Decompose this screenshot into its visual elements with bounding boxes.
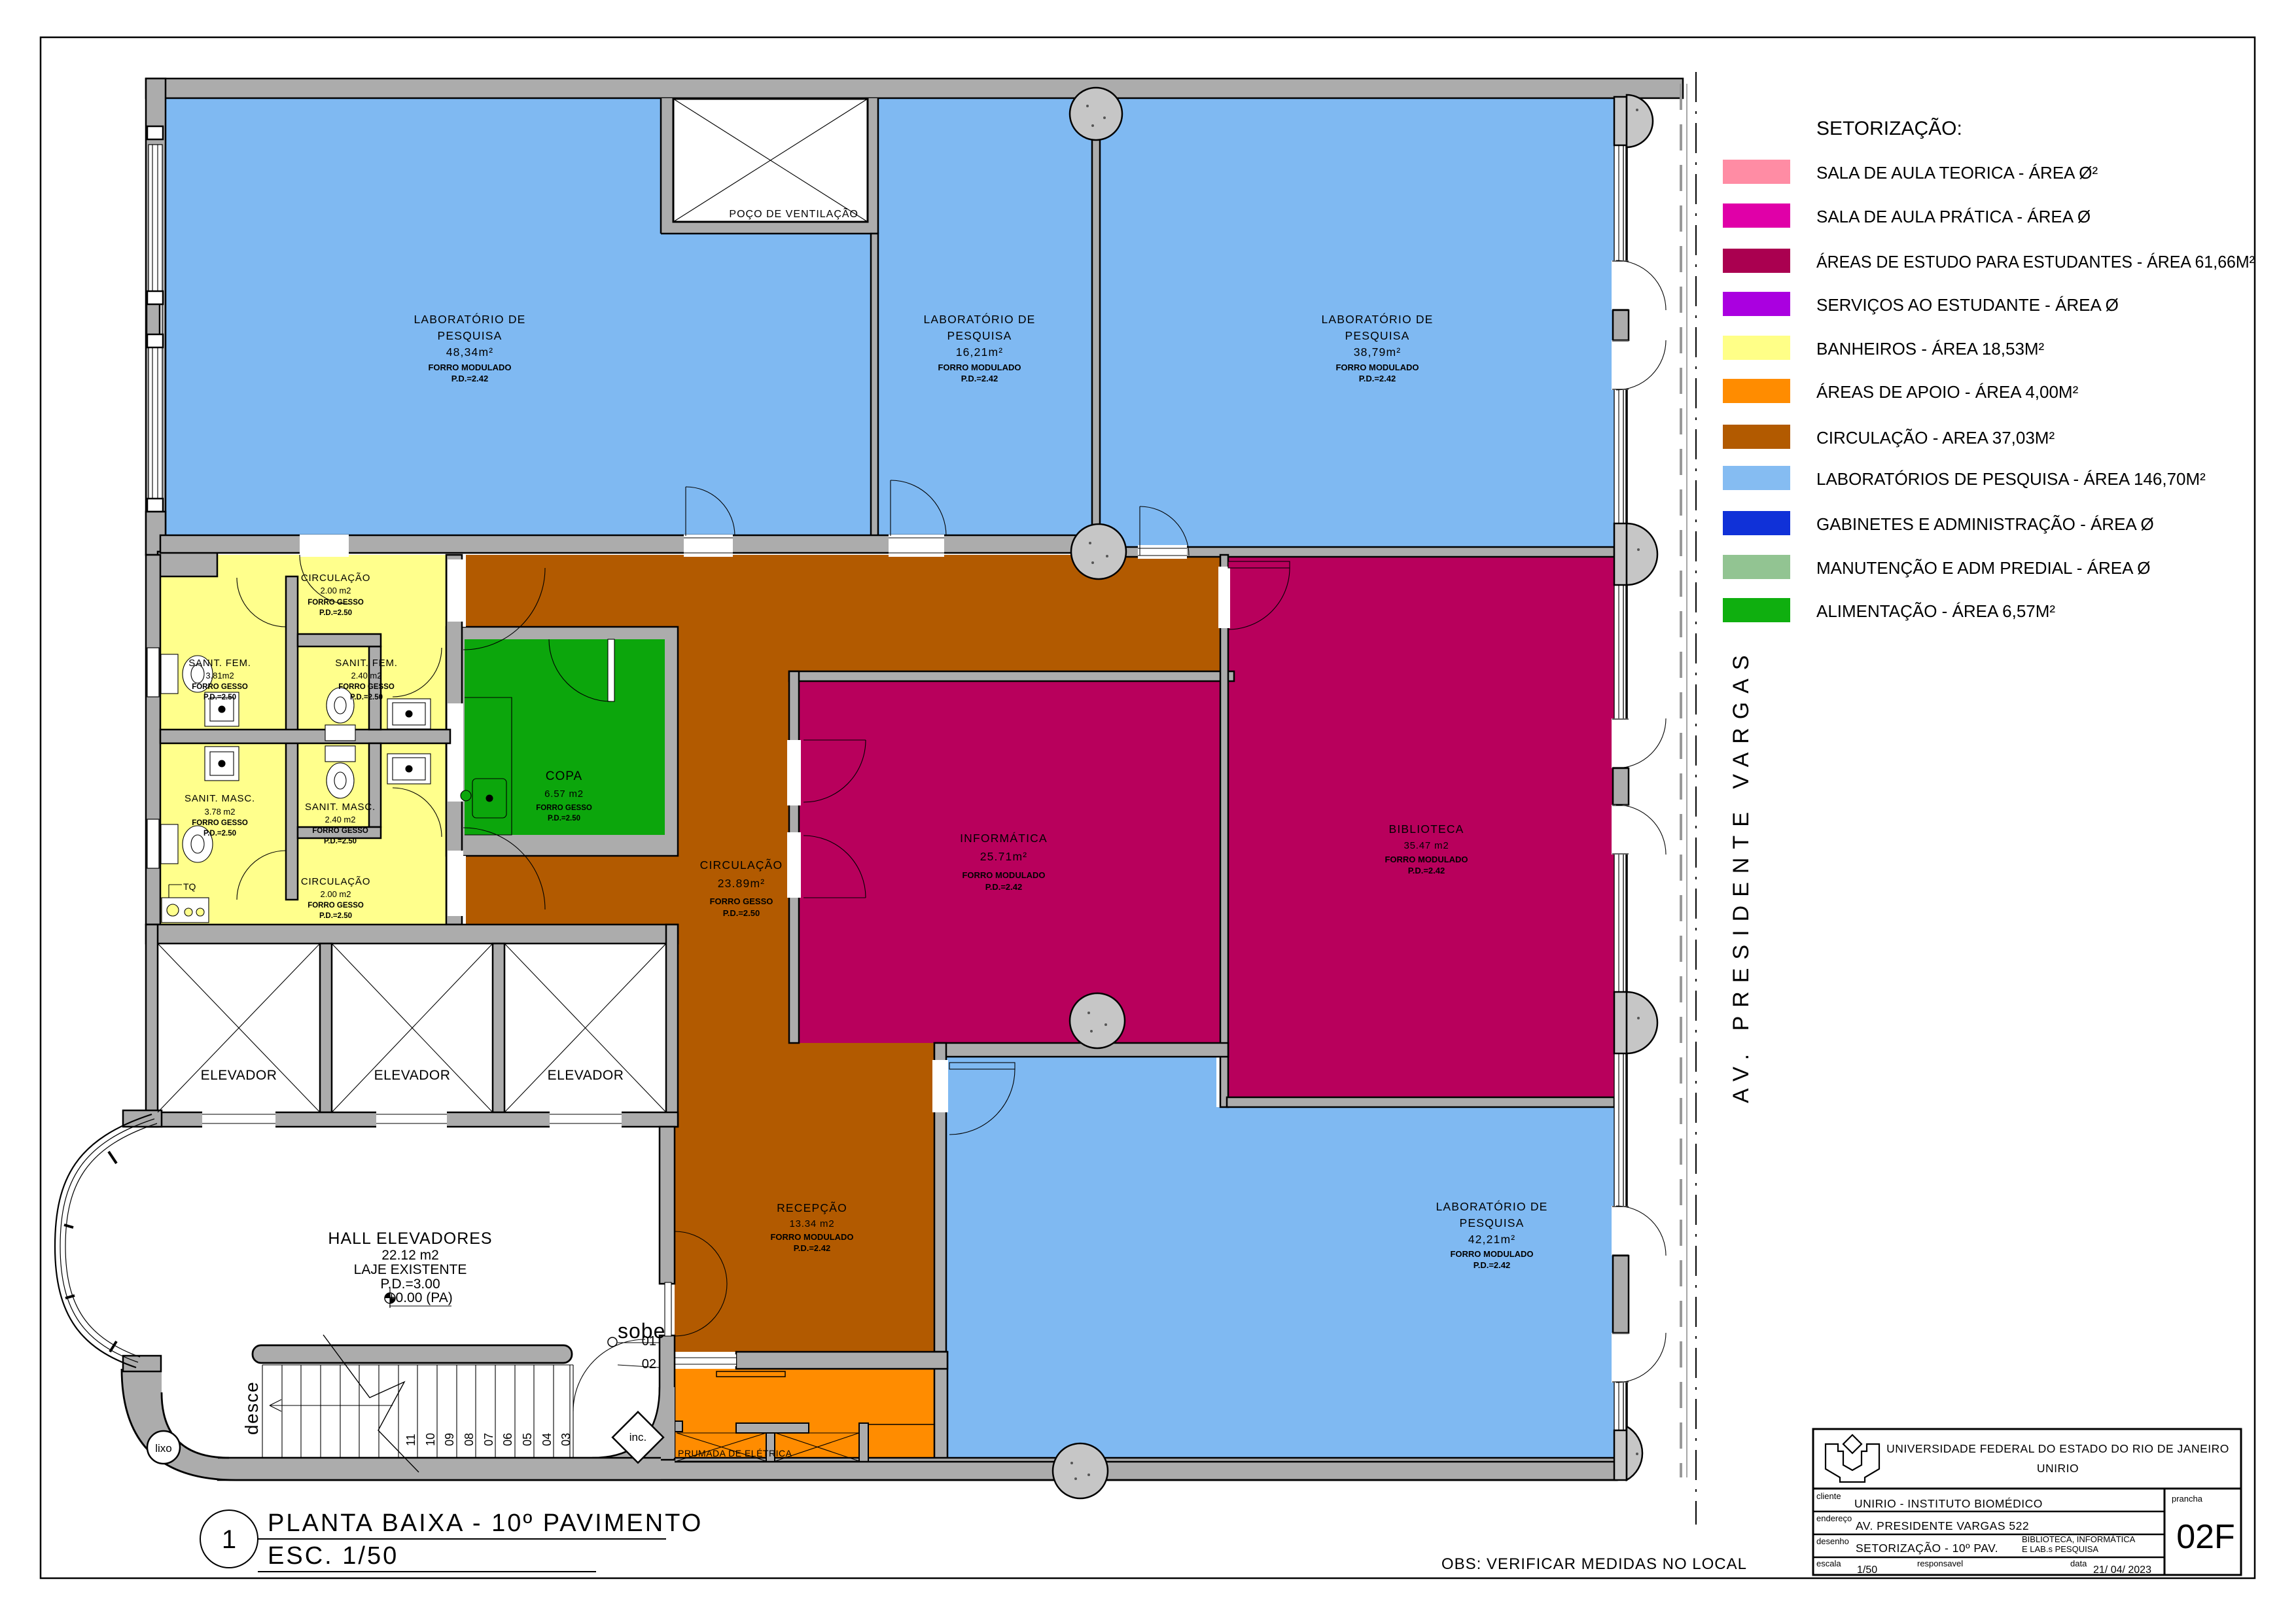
svg-text:endereço: endereço — [1816, 1513, 1852, 1523]
svg-text:PESQUISA: PESQUISA — [437, 329, 502, 342]
svg-text:SANIT. FEM.: SANIT. FEM. — [188, 658, 251, 669]
svg-text:cliente: cliente — [1816, 1491, 1841, 1501]
svg-text:ÁREAS DE APOIO - ÁREA 4,00M²: ÁREAS DE APOIO - ÁREA 4,00M² — [1816, 382, 2079, 402]
svg-text:P.D.=2.50: P.D.=2.50 — [723, 908, 760, 918]
svg-text:UNIRIO: UNIRIO — [2037, 1462, 2079, 1475]
svg-text:OBS: VERIFICAR MEDIDAS NO LOCA: OBS: VERIFICAR MEDIDAS NO LOCAL — [1441, 1555, 1747, 1573]
svg-text:LAJE EXISTENTE: LAJE EXISTENTE — [354, 1262, 467, 1277]
svg-text:COPA: COPA — [546, 769, 582, 783]
svg-text:SANIT. FEM.: SANIT. FEM. — [335, 658, 397, 669]
svg-text:16,21m²: 16,21m² — [956, 345, 1004, 359]
svg-text:LABORATÓRIO DE: LABORATÓRIO DE — [923, 312, 1035, 326]
svg-text:P.D.=2.42: P.D.=2.42 — [1474, 1260, 1511, 1270]
svg-text:FORRO GESSO: FORRO GESSO — [536, 804, 592, 812]
svg-text:SETORIZAÇÃO - 10º PAV.: SETORIZAÇÃO - 10º PAV. — [1856, 1541, 1998, 1555]
svg-text:02F: 02F — [2176, 1518, 2235, 1556]
svg-text:FORRO MODULADO: FORRO MODULADO — [428, 362, 511, 372]
svg-text:BANHEIROS - ÁREA 18,53M²: BANHEIROS - ÁREA 18,53M² — [1816, 339, 2045, 359]
svg-text:desenho: desenho — [1816, 1536, 1849, 1546]
svg-text:22.12 m2: 22.12 m2 — [381, 1248, 439, 1263]
svg-text:LABORATÓRIO DE: LABORATÓRIO DE — [1321, 312, 1433, 326]
svg-text:04: 04 — [540, 1433, 554, 1446]
svg-text:07: 07 — [482, 1433, 495, 1446]
svg-text:2.00 m2: 2.00 m2 — [321, 889, 351, 899]
svg-text:2.00 m2: 2.00 m2 — [321, 586, 351, 595]
svg-text:01: 01 — [642, 1334, 656, 1349]
svg-text:FORRO GESSO: FORRO GESSO — [338, 683, 395, 691]
svg-text:35.47 m2: 35.47 m2 — [1404, 840, 1449, 851]
svg-text:11: 11 — [404, 1434, 417, 1446]
svg-text:ELEVADOR: ELEVADOR — [374, 1068, 451, 1083]
svg-text:FORRO MODULADO: FORRO MODULADO — [1385, 855, 1468, 864]
svg-text:lixo: lixo — [155, 1442, 172, 1455]
svg-text:FORRO GESSO: FORRO GESSO — [312, 827, 368, 835]
svg-text:LABORATÓRIO DE: LABORATÓRIO DE — [414, 312, 525, 326]
svg-text:1/50: 1/50 — [1857, 1564, 1877, 1576]
svg-text:P.D.=2.50: P.D.=2.50 — [203, 830, 236, 838]
svg-text:prancha: prancha — [2172, 1494, 2203, 1504]
svg-text:GABINETES E ADMINISTRAÇÃO - ÁR: GABINETES E ADMINISTRAÇÃO - ÁREA Ø — [1816, 514, 2154, 534]
svg-text:inc.: inc. — [629, 1431, 646, 1443]
svg-text:ELEVADOR: ELEVADOR — [548, 1068, 624, 1083]
svg-text:P.D.=2.42: P.D.=2.42 — [451, 374, 489, 383]
svg-text:LABORATÓRIO DE: LABORATÓRIO DE — [1436, 1199, 1547, 1213]
svg-text:PESQUISA: PESQUISA — [1459, 1216, 1524, 1229]
svg-text:02: 02 — [642, 1357, 656, 1371]
svg-text:+0.00 (PA): +0.00 (PA) — [387, 1290, 452, 1305]
svg-text:RECEPÇÃO: RECEPÇÃO — [777, 1201, 847, 1214]
svg-text:UNIRIO - INSTITUTO BIOMÉDICO: UNIRIO - INSTITUTO BIOMÉDICO — [1854, 1497, 2043, 1510]
svg-text:P.D.=2.50: P.D.=2.50 — [548, 815, 580, 822]
svg-text:MANUTENÇÃO E ADM PREDIAL - ÁRE: MANUTENÇÃO E ADM PREDIAL - ÁREA Ø — [1816, 558, 2150, 578]
svg-text:LABORATÓRIOS DE PESQUISA - ÁRE: LABORATÓRIOS DE PESQUISA - ÁREA 146,70M² — [1816, 469, 2206, 489]
svg-text:ÁREAS DE ESTUDO PARA ESTUDANTE: ÁREAS DE ESTUDO PARA ESTUDANTES - ÁREA 6… — [1816, 252, 2255, 272]
svg-text:AV. PRESIDENTE VARGAS 522: AV. PRESIDENTE VARGAS 522 — [1856, 1519, 2029, 1532]
svg-text:AV. PRESIDENTE VARGAS: AV. PRESIDENTE VARGAS — [1729, 646, 1754, 1103]
svg-text:08: 08 — [463, 1433, 476, 1446]
svg-text:SALA DE AULA TEORICA - ÁREA Ø²: SALA DE AULA TEORICA - ÁREA Ø² — [1816, 163, 2098, 183]
svg-text:09: 09 — [443, 1433, 456, 1446]
svg-text:CIRCULAÇÃO: CIRCULAÇÃO — [301, 876, 370, 887]
svg-text:6.57 m2: 6.57 m2 — [544, 788, 584, 800]
svg-text:3.78 m2: 3.78 m2 — [205, 807, 236, 817]
svg-text:06: 06 — [501, 1433, 514, 1446]
svg-text:P.D.=2.42: P.D.=2.42 — [1408, 866, 1445, 875]
svg-text:42,21m²: 42,21m² — [1468, 1233, 1516, 1246]
svg-text:P.D.=3.00: P.D.=3.00 — [380, 1277, 440, 1292]
svg-text:POÇO DE VENTILAÇÃO: POÇO DE VENTILAÇÃO — [729, 207, 858, 220]
svg-text:FORRO GESSO: FORRO GESSO — [192, 819, 248, 827]
svg-text:38,79m²: 38,79m² — [1354, 345, 1402, 359]
svg-text:05: 05 — [521, 1433, 534, 1446]
svg-text:3.81m2: 3.81m2 — [205, 671, 234, 680]
svg-text:1: 1 — [222, 1525, 236, 1554]
svg-text:13.34 m2: 13.34 m2 — [790, 1218, 835, 1229]
svg-text:SANIT. MASC.: SANIT. MASC. — [185, 793, 255, 804]
svg-text:PLANTA BAIXA - 10º PAVIMENTO: PLANTA BAIXA - 10º PAVIMENTO — [268, 1509, 703, 1537]
svg-text:P.D.=2.50: P.D.=2.50 — [319, 609, 352, 617]
svg-text:FORRO MODULADO: FORRO MODULADO — [1335, 362, 1419, 372]
svg-text:UNIVERSIDADE FEDERAL DO ESTADO: UNIVERSIDADE FEDERAL DO ESTADO DO RIO DE… — [1886, 1442, 2229, 1455]
svg-text:SANIT. MASC.: SANIT. MASC. — [305, 802, 376, 813]
svg-text:2.40 m2: 2.40 m2 — [351, 671, 382, 680]
svg-text:FORRO MODULADO: FORRO MODULADO — [962, 870, 1045, 880]
svg-text:ESC. 1/50: ESC. 1/50 — [268, 1542, 398, 1570]
svg-text:BIBLIOTECA: BIBLIOTECA — [1388, 822, 1464, 836]
svg-text:CIRCULAÇÃO: CIRCULAÇÃO — [301, 573, 370, 584]
svg-text:FORRO GESSO: FORRO GESSO — [710, 896, 773, 906]
svg-text:FORRO GESSO: FORRO GESSO — [308, 902, 364, 909]
svg-text:21/ 04/ 2023: 21/ 04/ 2023 — [2093, 1564, 2151, 1576]
svg-text:CIRCULAÇÃO - AREA 37,03M²: CIRCULAÇÃO - AREA 37,03M² — [1816, 428, 2055, 448]
svg-text:BIBLIOTECA, INFORMÁTICA: BIBLIOTECA, INFORMÁTICA — [2022, 1534, 2136, 1544]
svg-text:P.D.=2.50: P.D.=2.50 — [350, 694, 383, 701]
svg-text:FORRO MODULADO: FORRO MODULADO — [938, 362, 1021, 372]
svg-text:FORRO GESSO: FORRO GESSO — [192, 683, 248, 691]
svg-text:P.D.=2.50: P.D.=2.50 — [324, 838, 357, 845]
svg-text:P.D.=2.42: P.D.=2.42 — [1359, 374, 1396, 383]
svg-text:10: 10 — [424, 1433, 437, 1446]
svg-text:25.71m²: 25.71m² — [980, 850, 1028, 863]
svg-text:FORRO GESSO: FORRO GESSO — [308, 599, 364, 607]
svg-text:E LAB.s PESQUISA: E LAB.s PESQUISA — [2022, 1544, 2098, 1554]
svg-text:48,34m²: 48,34m² — [446, 345, 494, 359]
svg-text:desce: desce — [241, 1381, 262, 1435]
svg-text:PRUMADA DE ELÉTRICA: PRUMADA DE ELÉTRICA — [678, 1448, 792, 1458]
svg-text:ALIMENTAÇÃO - ÁREA 6,57M²: ALIMENTAÇÃO - ÁREA 6,57M² — [1816, 601, 2055, 621]
svg-text:P.D.=2.50: P.D.=2.50 — [203, 694, 236, 701]
svg-text:data: data — [2070, 1559, 2087, 1568]
svg-text:SALA DE AULA PRÁTICA - ÁREA Ø: SALA DE AULA PRÁTICA - ÁREA Ø — [1816, 207, 2091, 226]
svg-text:SETORIZAÇÃO:: SETORIZAÇÃO: — [1816, 117, 1962, 139]
svg-text:FORRO MODULADO: FORRO MODULADO — [1450, 1249, 1533, 1259]
svg-text:PESQUISA: PESQUISA — [947, 329, 1012, 342]
svg-text:TQ: TQ — [183, 881, 196, 892]
svg-text:responsavel: responsavel — [1917, 1559, 1963, 1568]
svg-text:2.40 m2: 2.40 m2 — [325, 815, 356, 824]
svg-text:escala: escala — [1816, 1559, 1841, 1568]
svg-text:FORRO MODULADO: FORRO MODULADO — [770, 1232, 853, 1242]
svg-text:PESQUISA: PESQUISA — [1345, 329, 1409, 342]
svg-text:23.89m²: 23.89m² — [718, 877, 766, 890]
svg-text:HALL ELEVADORES: HALL ELEVADORES — [328, 1229, 492, 1248]
svg-text:CIRCULAÇÃO: CIRCULAÇÃO — [700, 858, 783, 872]
svg-text:SERVIÇOS AO ESTUDANTE - ÁREA Ø: SERVIÇOS AO ESTUDANTE - ÁREA Ø — [1816, 295, 2119, 315]
svg-text:03: 03 — [559, 1433, 573, 1446]
svg-text:P.D.=2.42: P.D.=2.42 — [985, 882, 1023, 892]
svg-text:P.D.=2.42: P.D.=2.42 — [794, 1243, 831, 1253]
svg-text:INFORMÁTICA: INFORMÁTICA — [960, 832, 1048, 845]
svg-text:P.D.=2.42: P.D.=2.42 — [961, 374, 998, 383]
svg-text:ELEVADOR: ELEVADOR — [201, 1068, 277, 1083]
svg-text:P.D.=2.50: P.D.=2.50 — [319, 912, 352, 920]
